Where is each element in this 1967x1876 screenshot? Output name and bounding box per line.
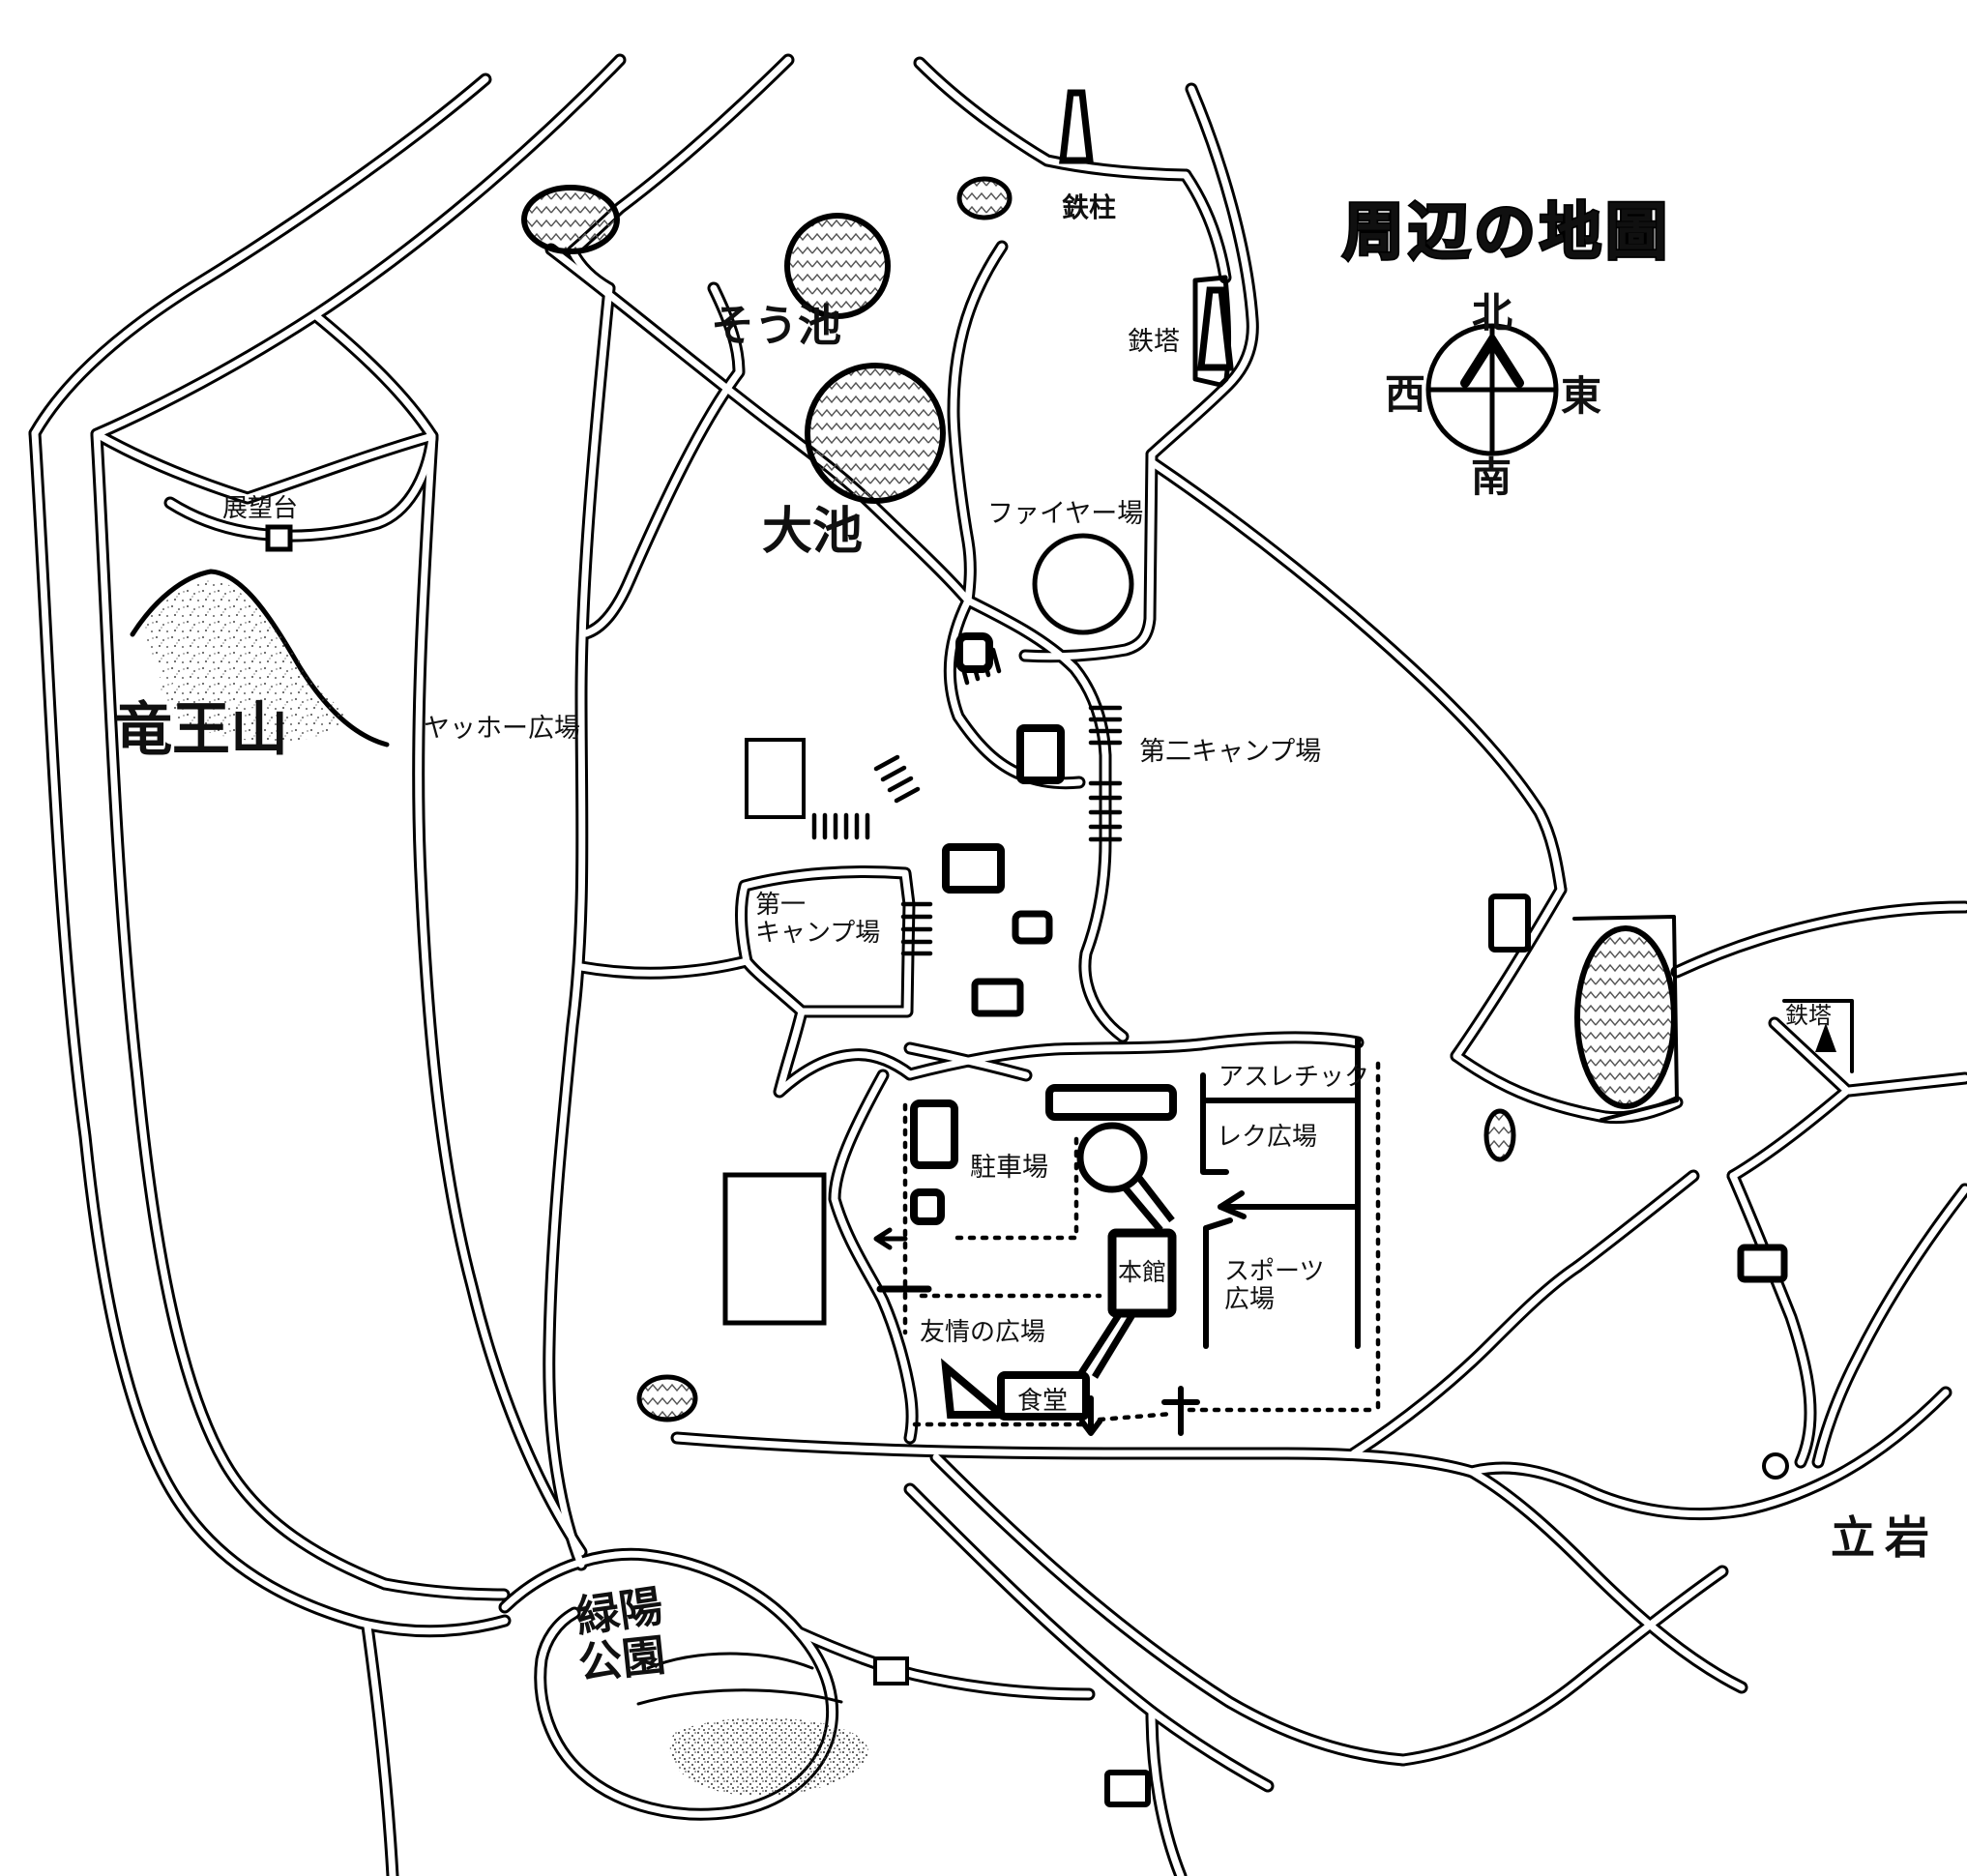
pond-east-small <box>1486 1111 1513 1159</box>
label-yujo-no-hiroba: 友情の広場 <box>920 1317 1045 1346</box>
label-tetto-right: 鉄塔 <box>1785 1003 1832 1029</box>
label-daini-camp: 第二キャンプ場 <box>1139 737 1321 766</box>
label-daiichi-camp-2: キャンプ場 <box>755 918 880 947</box>
camp2-hut-5 <box>975 982 1020 1013</box>
camp2-hut-4 <box>1015 914 1049 941</box>
label-reku-hiroba: レク広場 <box>1217 1122 1317 1151</box>
pond-small-top <box>959 179 1010 218</box>
label-shokudo: 食堂 <box>1017 1386 1068 1415</box>
park-pond <box>670 1717 868 1796</box>
label-chushajo: 駐車場 <box>970 1153 1048 1182</box>
compass-east: 東 <box>1561 372 1601 420</box>
label-daiichi-camp-1: 第一 <box>755 890 806 919</box>
small-building-1 <box>914 1103 954 1165</box>
pond-east <box>1577 928 1674 1106</box>
pond-west-small <box>639 1377 695 1420</box>
long-building <box>1049 1088 1173 1117</box>
tetto-tower-icon <box>1201 290 1230 367</box>
compass-west: 西 <box>1385 370 1425 418</box>
camp2-hut-2 <box>1020 728 1061 780</box>
hand-drawn-area-map: 北 西 東 南 周辺の地圖 鉄柱 鉄塔 そう池 大池 ファイヤー場 展望台 竜王… <box>0 0 1967 1876</box>
camp1-shed <box>747 740 804 817</box>
label-tenbodai: 展望台 <box>222 493 298 522</box>
label-honkan: 本館 <box>1118 1259 1166 1286</box>
tateiwa-rock <box>1764 1454 1787 1478</box>
park-shed <box>875 1658 907 1684</box>
tenbodai-square <box>268 527 290 549</box>
fire-circle <box>1035 536 1131 632</box>
small-building-2 <box>914 1192 941 1221</box>
label-fire-ground: ファイヤー場 <box>987 499 1143 528</box>
tetchu-tower-icon <box>1063 93 1090 161</box>
far-east-shed <box>1741 1247 1784 1279</box>
label-athletic: アスレチック <box>1218 1062 1369 1091</box>
page-title: 周辺の地圖 <box>1342 197 1671 269</box>
label-tetto-top: 鉄塔 <box>1128 327 1180 356</box>
compass-rose: 北 西 東 南 <box>1385 289 1601 501</box>
camp2-hut-3 <box>946 847 1001 890</box>
field-rect <box>725 1175 824 1323</box>
honkan-walk <box>1081 1313 1133 1377</box>
label-tateiwa: 立岩 <box>1831 1511 1939 1564</box>
label-yahho-hiroba: ヤッホー広場 <box>424 714 580 743</box>
label-so-ike: そう池 <box>711 300 841 351</box>
south-shed <box>1107 1773 1148 1804</box>
shokudo-triangle <box>946 1367 1002 1415</box>
camp2-hut-1 <box>959 636 989 669</box>
east-shed <box>1491 896 1528 950</box>
label-sports-2: 広場 <box>1224 1284 1275 1313</box>
label-o-ike: 大池 <box>762 503 863 561</box>
label-sports-1: スポーツ <box>1224 1256 1324 1285</box>
label-ryokuyo-2: 公園 <box>576 1630 668 1688</box>
compass-north: 北 <box>1472 289 1512 337</box>
label-tetchu: 鉄柱 <box>1062 191 1116 223</box>
compass-south: 南 <box>1471 454 1512 501</box>
roundabout <box>1080 1126 1144 1189</box>
stairs <box>814 650 1120 953</box>
label-ryuo-zan: 竜王山 <box>114 697 288 762</box>
pond-top-left <box>524 188 617 251</box>
pond-o-ike <box>807 366 943 501</box>
map-page: 北 西 東 南 周辺の地圖 鉄柱 鉄塔 そう池 大池 ファイヤー場 展望台 竜王… <box>0 0 1967 1876</box>
